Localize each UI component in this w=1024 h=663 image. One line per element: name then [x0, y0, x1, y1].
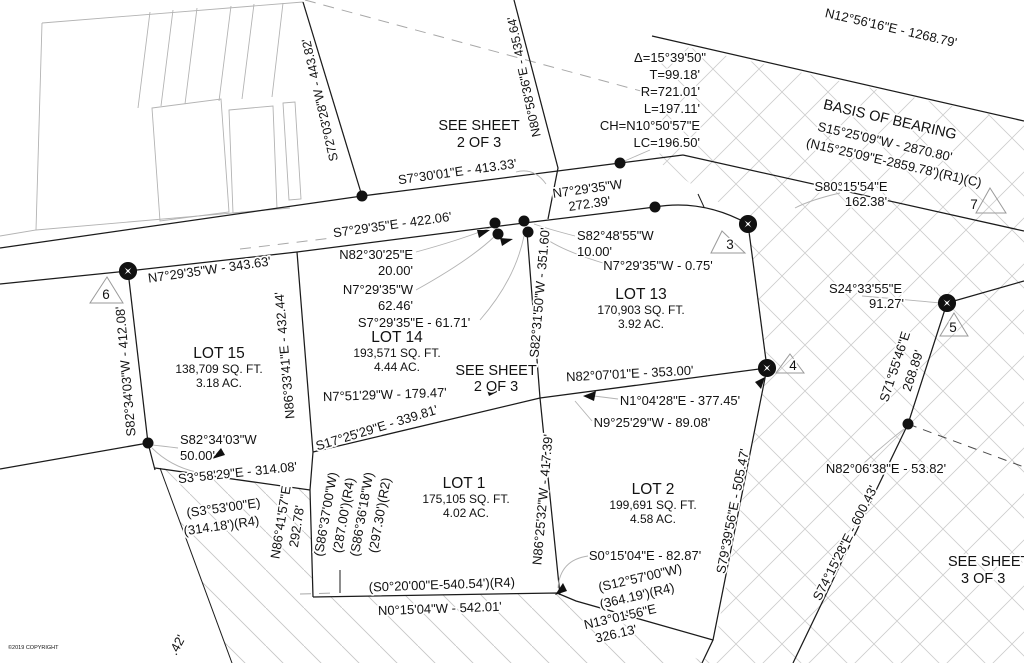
section-corner-monument-icon — [938, 294, 955, 311]
lot-title: LOT 2 — [632, 481, 675, 498]
monument-dot-icon — [903, 419, 914, 430]
lot-area-label: 138,709 SQ. FT. — [175, 362, 262, 376]
sheet-reference-label: SEE SHEET — [455, 363, 537, 379]
curve-data-line: L=197.11' — [644, 101, 700, 116]
lot-area-label: 199,691 SQ. FT. — [609, 498, 696, 512]
curve-data-line: T=99.18' — [649, 67, 700, 82]
lot-title: LOT 1 — [443, 475, 486, 492]
corner-id-label: 4 — [789, 358, 797, 373]
bearing-distance-label: N7°29'35"W - 0.75' — [603, 258, 712, 273]
corner-id-label: 6 — [102, 287, 110, 302]
lot-area-label: 3.18 AC. — [196, 376, 242, 390]
lot-title: LOT 13 — [615, 286, 666, 303]
bearing-distance-label: 50.00' — [180, 448, 215, 463]
bearing-distance-label: N9°25'29"W - 89.08' — [594, 415, 711, 430]
bearing-distance-label: 20.00' — [378, 263, 413, 278]
lot-area-label: 170,903 SQ. FT. — [597, 303, 684, 317]
bearing-distance-label: 10.00' — [577, 244, 612, 259]
lot-area-label: 193,571 SQ. FT. — [353, 346, 440, 360]
bearing-distance-label: S0°15'04"E - 82.87' — [589, 548, 701, 563]
lot-area-label: 4.44 AC. — [374, 360, 420, 374]
sheet-reference-label: 2 OF 3 — [457, 135, 501, 151]
bearing-distance-label: N1°04'28"E - 377.45' — [620, 393, 740, 408]
bearing-distance-label: S82°34'03"W — [180, 432, 257, 447]
lot-area-label: 4.58 AC. — [630, 512, 676, 526]
lot-area-label: 175,105 SQ. FT. — [422, 492, 509, 506]
survey-plat-canvas: 34567 S72°03'28"W - 443.82'N80°58'36"E -… — [0, 0, 1024, 663]
sheet-reference-label: SEE SHEET — [948, 554, 1024, 570]
bearing-distance-label: S24°33'55"E — [829, 281, 902, 296]
curve-data-line: R=721.01' — [641, 84, 700, 99]
monument-dot-icon — [523, 227, 534, 238]
monument-dot-icon — [143, 438, 154, 449]
corner-id-label: 3 — [726, 237, 734, 252]
lot-area-label: 4.02 AC. — [443, 506, 489, 520]
sheet-reference-label: SEE SHEET — [438, 118, 520, 134]
lot-title: LOT 14 — [371, 329, 423, 346]
bearing-distance-label: 162.38' — [845, 194, 887, 209]
bearing-distance-label: 62.46' — [378, 298, 413, 313]
copyright-label: ©2019 COPYRIGHT — [8, 644, 59, 651]
bearing-distance-label: S82°48'55"W — [577, 228, 654, 243]
monument-dot-icon — [650, 202, 661, 213]
corner-id-label: 7 — [970, 197, 978, 212]
curve-data-line: Δ=15°39'50" — [634, 50, 706, 65]
section-corner-monument-icon — [119, 262, 136, 279]
monument-dot-icon — [519, 216, 530, 227]
section-corner-monument-icon — [758, 359, 775, 376]
curve-data-line: CH=N10°50'57"E — [600, 118, 700, 133]
sheet-reference-label: 2 OF 3 — [474, 379, 518, 395]
bearing-distance-label: N82°30'25"E — [339, 247, 413, 262]
sheet-reference-label: 3 OF 3 — [961, 571, 1005, 587]
monument-dot-icon — [493, 229, 504, 240]
bearing-distance-label: S80°15'54"E — [814, 179, 887, 194]
monument-dot-icon — [357, 191, 368, 202]
bearing-distance-label: 91.27' — [869, 296, 904, 311]
lot-area-label: 3.92 AC. — [618, 317, 664, 331]
lot-title: LOT 15 — [193, 345, 244, 362]
curve-data-line: LC=196.50' — [634, 135, 700, 150]
bearing-distance-label: S7°29'35"E - 61.71' — [358, 315, 470, 330]
corner-id-label: 5 — [949, 320, 957, 335]
monument-dot-icon — [490, 218, 501, 229]
section-corner-monument-icon — [739, 215, 756, 232]
bearing-distance-label: N7°29'35"W — [343, 282, 414, 297]
monument-dot-icon — [615, 158, 626, 169]
bearing-distance-label: N82°06'38"E - 53.82' — [826, 461, 946, 476]
